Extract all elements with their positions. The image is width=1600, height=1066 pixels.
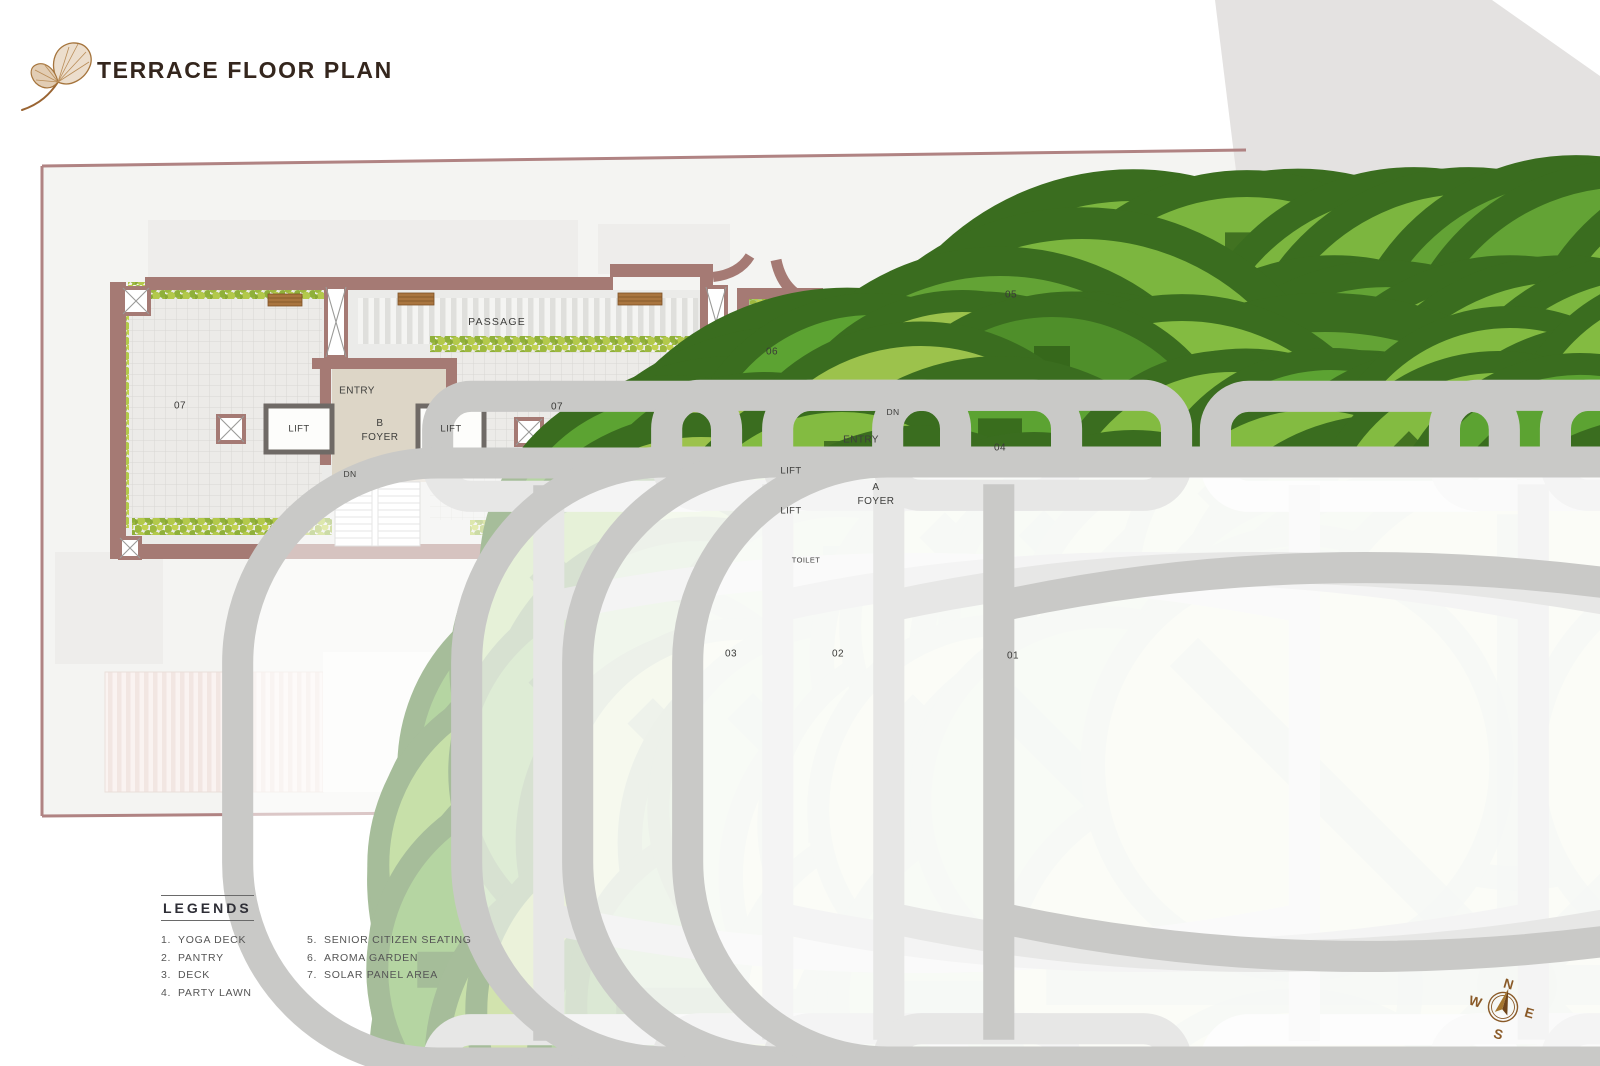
legend-label: SENIOR CITIZEN SEATING [324,934,472,946]
legend-num: 4. [161,987,178,999]
legend-label: AROMA GARDEN [324,952,418,964]
dn-a-label: DN [886,407,899,417]
ginkgo-leaf-logo [14,36,96,116]
a-foyer-label: A FOYER [858,481,895,509]
legend-num: 2. [161,952,178,964]
lift-a1-label: LIFT [780,466,801,477]
b-foyer-line1: B [362,417,399,431]
entry-b-label: ENTRY [339,386,375,397]
area-04-label: 04 [994,443,1006,454]
legend-item-aroma-garden: 6. AROMA GARDEN [307,952,472,964]
lift-b-left-label: LIFT [288,424,309,435]
legend-label: SOLAR PANEL AREA [324,969,438,981]
area-02-label: 02 [832,649,844,660]
legend-label: DECK [178,969,210,981]
area-03-label: 03 [725,649,737,660]
toilet-label: TOILET [792,556,821,565]
a-foyer-line1: A [858,481,895,495]
legend-num: 3. [161,969,178,981]
lift-b-right-label: LIFT [440,424,461,435]
legend-num: 7. [307,969,324,981]
legend-label: PANTRY [178,952,224,964]
legend-label: YOGA DECK [178,934,246,946]
passage-label: PASSAGE [468,316,526,328]
legend-item-party-lawn: 4. PARTY LAWN [161,987,279,999]
legend-item-solar-panel: 7. SOLAR PANEL AREA [307,969,472,981]
legend-item-yoga-deck: 1. YOGA DECK [161,934,279,946]
legend-item-deck: 3. DECK [161,969,279,981]
legend-item-pantry: 2. PANTRY [161,952,279,964]
legends: LEGENDS 1. YOGA DECK 2. PANTRY 3. DECK 4… [161,895,472,1004]
lift-a2-label: LIFT [780,506,801,517]
area-05-label: 05 [1005,290,1017,301]
legends-heading: LEGENDS [161,895,254,921]
area-07-mid-label: 07 [551,402,563,413]
area-07-left-label: 07 [174,401,186,412]
area-06-label: 06 [766,347,778,358]
area-01-label: 01 [1007,651,1019,662]
dn-b-label: DN [343,469,356,479]
legend-label: PARTY LAWN [178,987,252,999]
legend-num: 6. [307,952,324,964]
page-title: TERRACE FLOOR PLAN [97,57,393,84]
b-foyer-line2: FOYER [362,431,399,445]
legend-item-senior-seating: 5. SENIOR CITIZEN SEATING [307,934,472,946]
b-foyer-label: B FOYER [362,417,399,445]
legend-num: 1. [161,934,178,946]
terrace-floor-plan: N E S W TERRACE FLOOR PLAN PASSAGE 07 07… [0,0,1600,1066]
legend-num: 5. [307,934,324,946]
a-foyer-line2: FOYER [858,495,895,509]
entry-a-label: ENTRY [843,435,879,446]
